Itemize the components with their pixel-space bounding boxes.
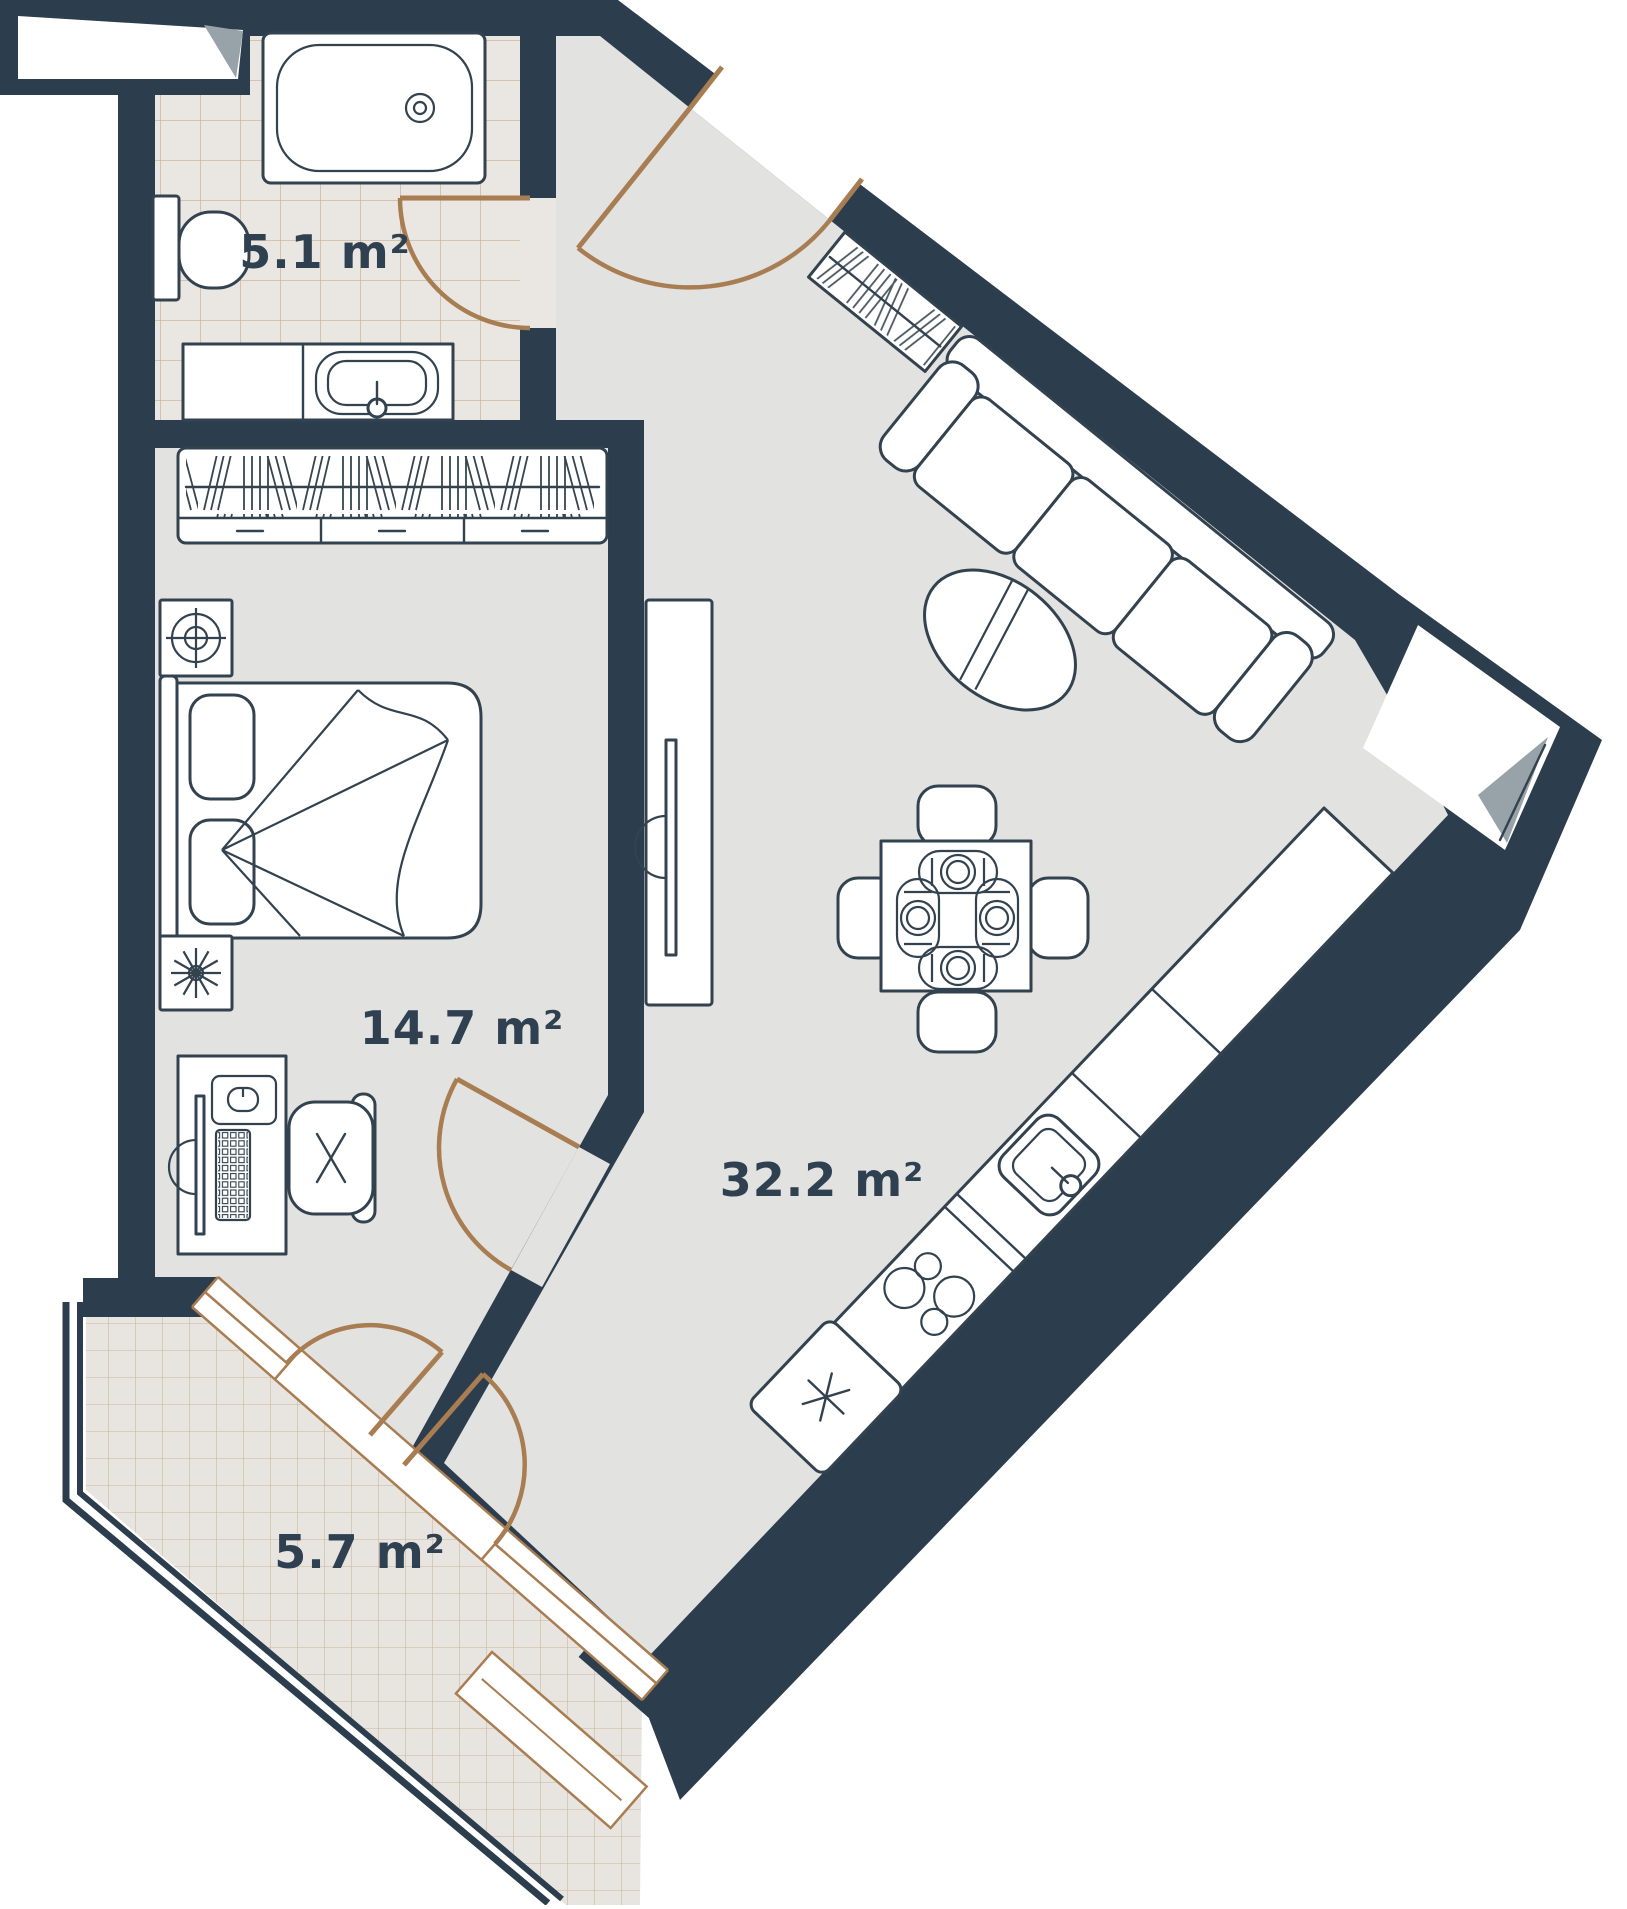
bathtub-icon bbox=[263, 33, 485, 183]
bedroom-area-label: 14.7 m² bbox=[360, 1001, 565, 1055]
floor-plan: 5.1 m² 14.7 m² 32.2 m² 5.7 m² bbox=[0, 0, 1627, 1905]
monitor-icon bbox=[196, 1096, 204, 1234]
double-bed-icon bbox=[160, 676, 481, 944]
nightstand-lamp-icon bbox=[160, 600, 232, 676]
nightstand-plant-icon bbox=[160, 936, 232, 1010]
balcony-corner-wall bbox=[83, 1278, 203, 1317]
tv-icon bbox=[666, 740, 676, 955]
bathroom-door-threshold bbox=[520, 198, 556, 328]
wardrobe-icon bbox=[178, 448, 607, 543]
tv-stand-icon bbox=[635, 600, 712, 1005]
dining-table-icon bbox=[881, 841, 1031, 991]
floor-plan-page: 5.1 m² 14.7 m² 32.2 m² 5.7 m² bbox=[0, 0, 1627, 1905]
vanity-sink-icon bbox=[183, 344, 453, 420]
balcony-area-label: 5.7 m² bbox=[274, 1525, 446, 1579]
bathroom-area-label: 5.1 m² bbox=[239, 225, 411, 279]
living-kitchen-area-label: 32.2 m² bbox=[720, 1153, 925, 1207]
desk-icon bbox=[169, 1056, 286, 1254]
desk-chair-icon bbox=[289, 1094, 375, 1222]
